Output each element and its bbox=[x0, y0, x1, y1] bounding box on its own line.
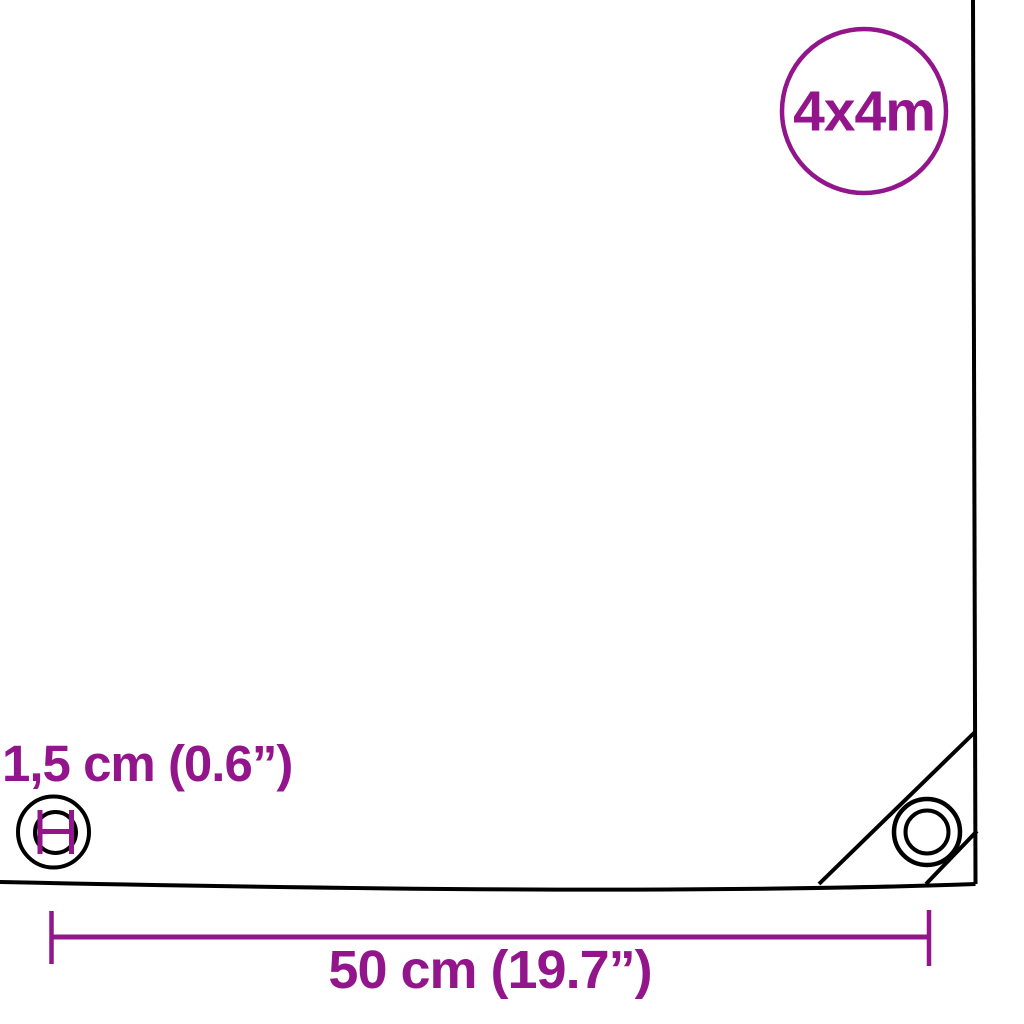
grommet-diameter-label: 1,5 cm (0.6”) bbox=[2, 738, 292, 789]
corner-grommet-icon bbox=[894, 799, 960, 865]
grommet-diameter-icon bbox=[18, 797, 89, 868]
diagram-linework bbox=[0, 0, 1024, 1024]
tarp-bottom-edge bbox=[0, 882, 976, 890]
corner-reinforcement bbox=[819, 732, 977, 884]
corner-grommet-inner-ring bbox=[906, 811, 949, 854]
tarp-right-edge bbox=[973, 0, 976, 884]
size-badge-label: 4x4m bbox=[793, 84, 935, 141]
grommet-spacing-label: 50 cm (19.7”) bbox=[51, 943, 929, 997]
corner-seam-short bbox=[926, 831, 977, 884]
tarpaulin-dimension-diagram: 4x4m 1,5 cm (0.6”) 50 cm (19.7”) bbox=[0, 0, 1024, 1024]
